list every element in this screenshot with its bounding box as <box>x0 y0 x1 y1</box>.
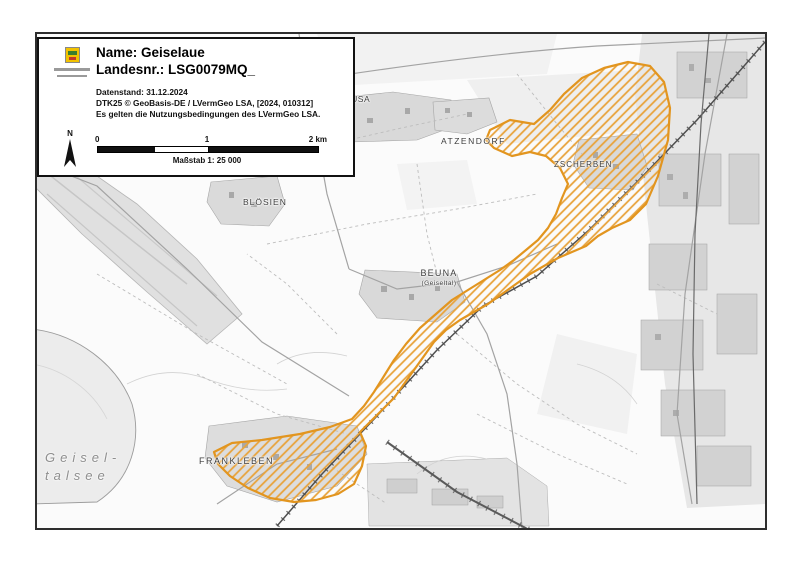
map-label-bloesien: BLÖSIEN <box>243 197 287 207</box>
logo-text-line <box>54 68 90 71</box>
scale-bar-ticks: 0 1 2 km <box>97 135 319 145</box>
map-label-atzendorf: ATZENDORF <box>441 136 506 146</box>
scale-segment-black <box>209 147 318 152</box>
north-label: N <box>59 129 81 138</box>
map-label-frankleben: FRANKLEBEN <box>199 456 274 466</box>
map-label-geiseltalsee-line2: talsee <box>45 468 110 483</box>
scale-segment-white <box>155 147 209 152</box>
scale-segment-black <box>98 147 155 152</box>
lvermgeo-logo <box>51 47 93 87</box>
state-emblem-icon <box>65 47 80 63</box>
meta-terms: Es gelten die Nutzungsbedingungen des LV… <box>96 109 348 120</box>
area-name-title: Name: Geiselaue <box>96 45 205 60</box>
north-arrow-icon <box>60 138 80 168</box>
logo-text-line <box>57 75 87 78</box>
scale-bar <box>97 146 319 153</box>
map-label-beuna: BEUNA <box>409 268 469 278</box>
scale-tick-0: 0 <box>95 135 99 144</box>
scale-tick-2: 2 km <box>309 135 327 144</box>
scale-tick-1: 1 <box>205 135 209 144</box>
map-info-box: Name: Geiselaue Landesnr.: LSG0079MQ_ Da… <box>37 37 355 177</box>
meta-datenstand: Datenstand: 31.12.2024 <box>96 87 348 98</box>
map-label-geiseltalsee-line1: Geisel- <box>45 450 121 465</box>
area-number-title: Landesnr.: LSG0079MQ_ <box>96 62 255 77</box>
north-arrow: N <box>59 129 81 173</box>
meta-copyright: DTK25 © GeoBasis-DE / LVermGeo LSA, [202… <box>96 98 348 109</box>
scale-caption: Maßstab 1: 25 000 <box>97 156 317 165</box>
map-label-beuna-sub: (Geiseltal) <box>405 280 473 287</box>
map-label-zscherben: ZSCHERBEN <box>554 160 612 169</box>
